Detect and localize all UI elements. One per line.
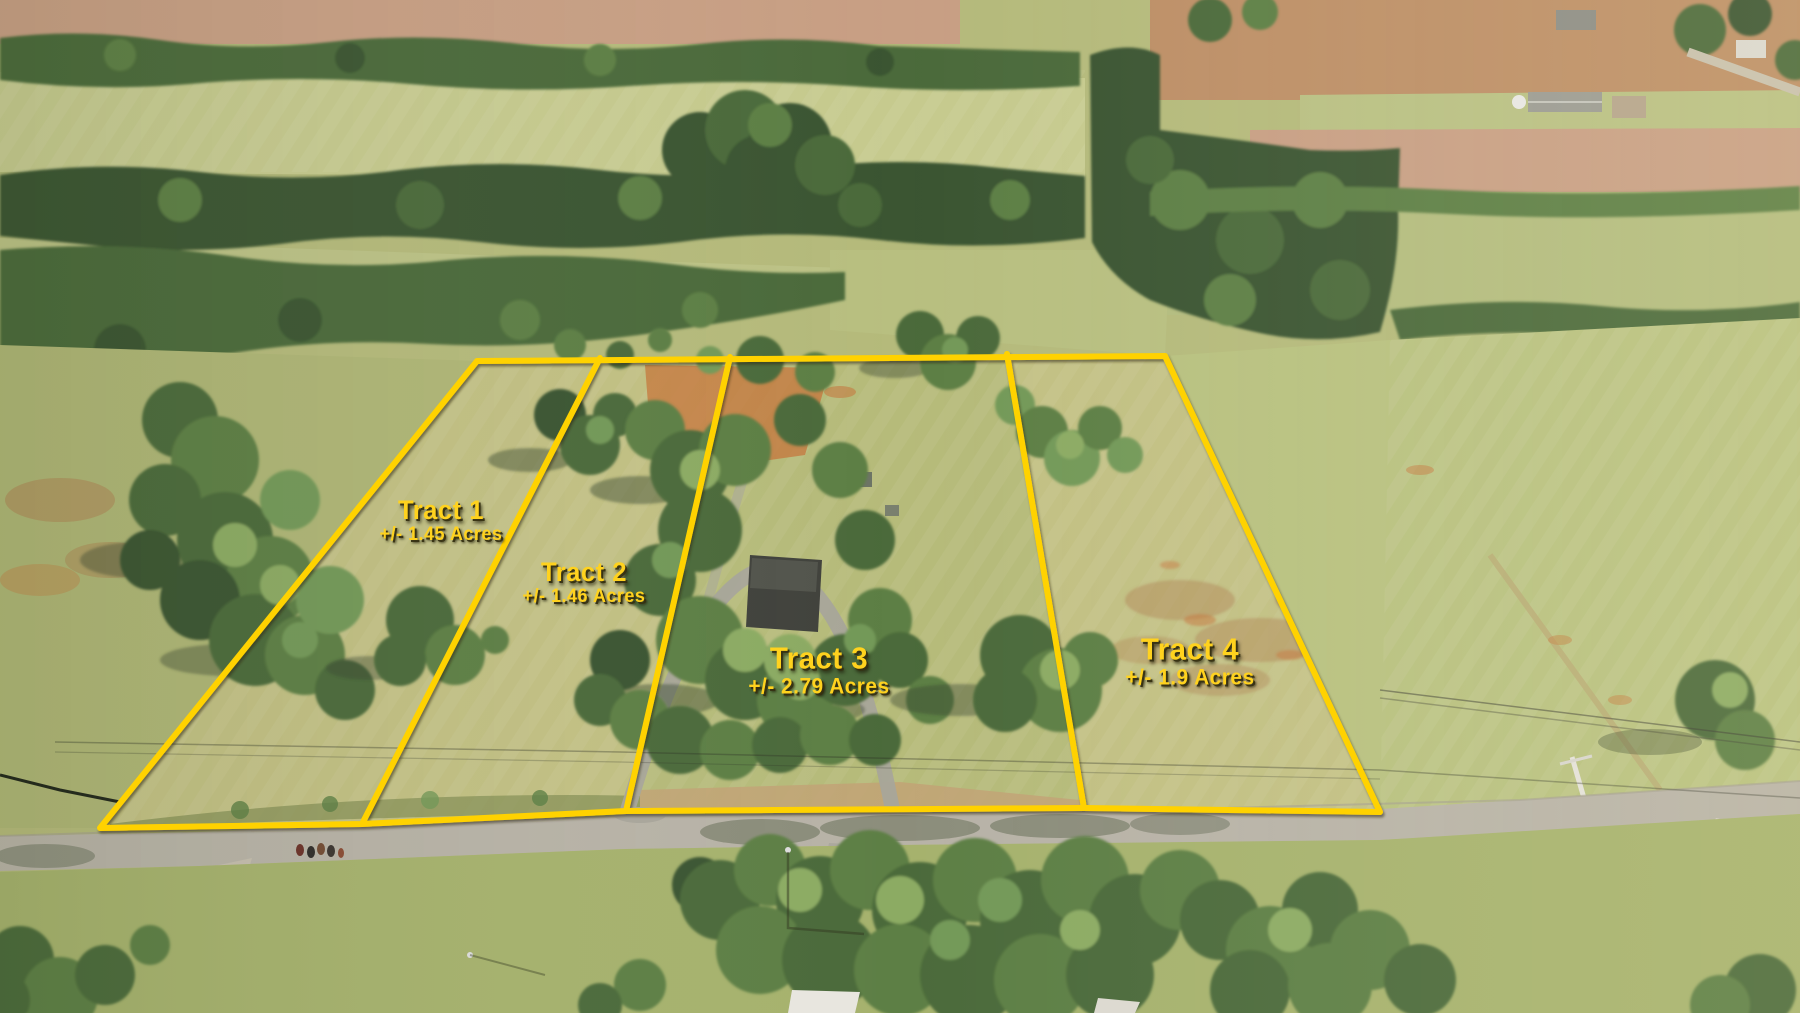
tract-4-name: Tract 4 <box>1125 632 1254 665</box>
tract-2-name: Tract 2 <box>523 558 646 587</box>
tract-2-label: Tract 2 +/- 1.46 Acres <box>523 558 646 608</box>
aerial-photo: Tract 1 +/- 1.45 Acres Tract 2 +/- 1.46 … <box>0 0 1800 1013</box>
tract-1-name: Tract 1 <box>380 496 503 525</box>
tract-1-label: Tract 1 +/- 1.45 Acres <box>380 496 503 546</box>
tract-3-name: Tract 3 <box>748 641 889 674</box>
tract-1-acreage: +/- 1.45 Acres <box>380 525 503 546</box>
tract-4-label: Tract 4 +/- 1.9 Acres <box>1125 632 1254 689</box>
light-overlay <box>0 0 1800 1013</box>
tract-4-acreage: +/- 1.9 Acres <box>1125 666 1254 690</box>
tract-2-acreage: +/- 1.46 Acres <box>523 587 646 608</box>
aerial-photo-canvas <box>0 0 1800 1013</box>
tract-3-acreage: +/- 2.79 Acres <box>748 675 889 699</box>
tract-3-label: Tract 3 +/- 2.79 Acres <box>748 641 889 698</box>
